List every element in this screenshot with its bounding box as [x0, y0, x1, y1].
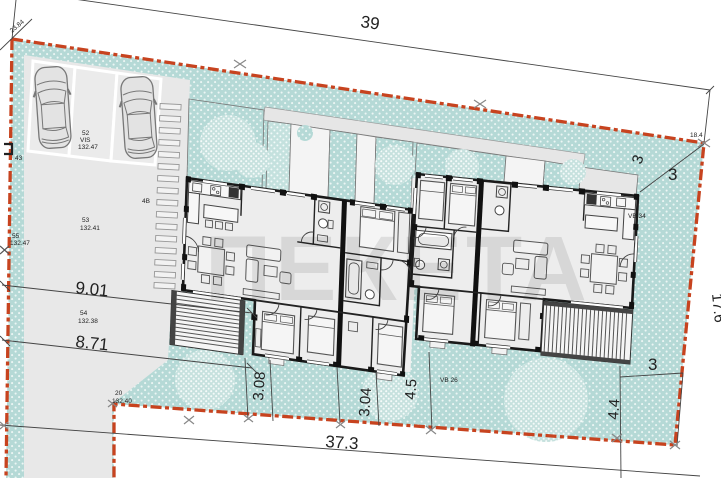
- svg-text:VIS: VIS: [80, 137, 91, 144]
- svg-text:3.08: 3.08: [250, 371, 269, 401]
- svg-text:53: 53: [82, 217, 90, 224]
- svg-text:4B: 4B: [142, 198, 150, 205]
- svg-text:3.04: 3.04: [356, 387, 375, 417]
- svg-text:132.41: 132.41: [80, 225, 100, 232]
- svg-text:4.5: 4.5: [402, 378, 420, 400]
- svg-text:132.38: 132.38: [78, 318, 98, 325]
- svg-text:VB 26: VB 26: [440, 377, 458, 384]
- svg-text:4.4: 4.4: [605, 398, 623, 420]
- svg-text:20: 20: [115, 390, 123, 397]
- svg-text:132.47: 132.47: [78, 144, 98, 151]
- svg-text:43: 43: [15, 155, 23, 162]
- svg-text:VB 34: VB 34: [628, 213, 646, 220]
- svg-text:54: 54: [80, 310, 88, 317]
- svg-text:132.40: 132.40: [112, 398, 132, 405]
- svg-text:3: 3: [648, 355, 657, 374]
- svg-text:39: 39: [359, 12, 380, 33]
- svg-text:9.01: 9.01: [75, 278, 110, 300]
- svg-text:52: 52: [82, 130, 90, 137]
- svg-text:132.47: 132.47: [10, 240, 30, 247]
- svg-text:3: 3: [668, 165, 677, 184]
- svg-text:55: 55: [12, 233, 20, 240]
- svg-text:ПЕКЕТА: ПЕКЕТА: [205, 218, 591, 320]
- svg-text:37.3: 37.3: [325, 432, 359, 453]
- svg-text:8.71: 8.71: [75, 332, 110, 354]
- svg-text:18.4: 18.4: [690, 132, 703, 139]
